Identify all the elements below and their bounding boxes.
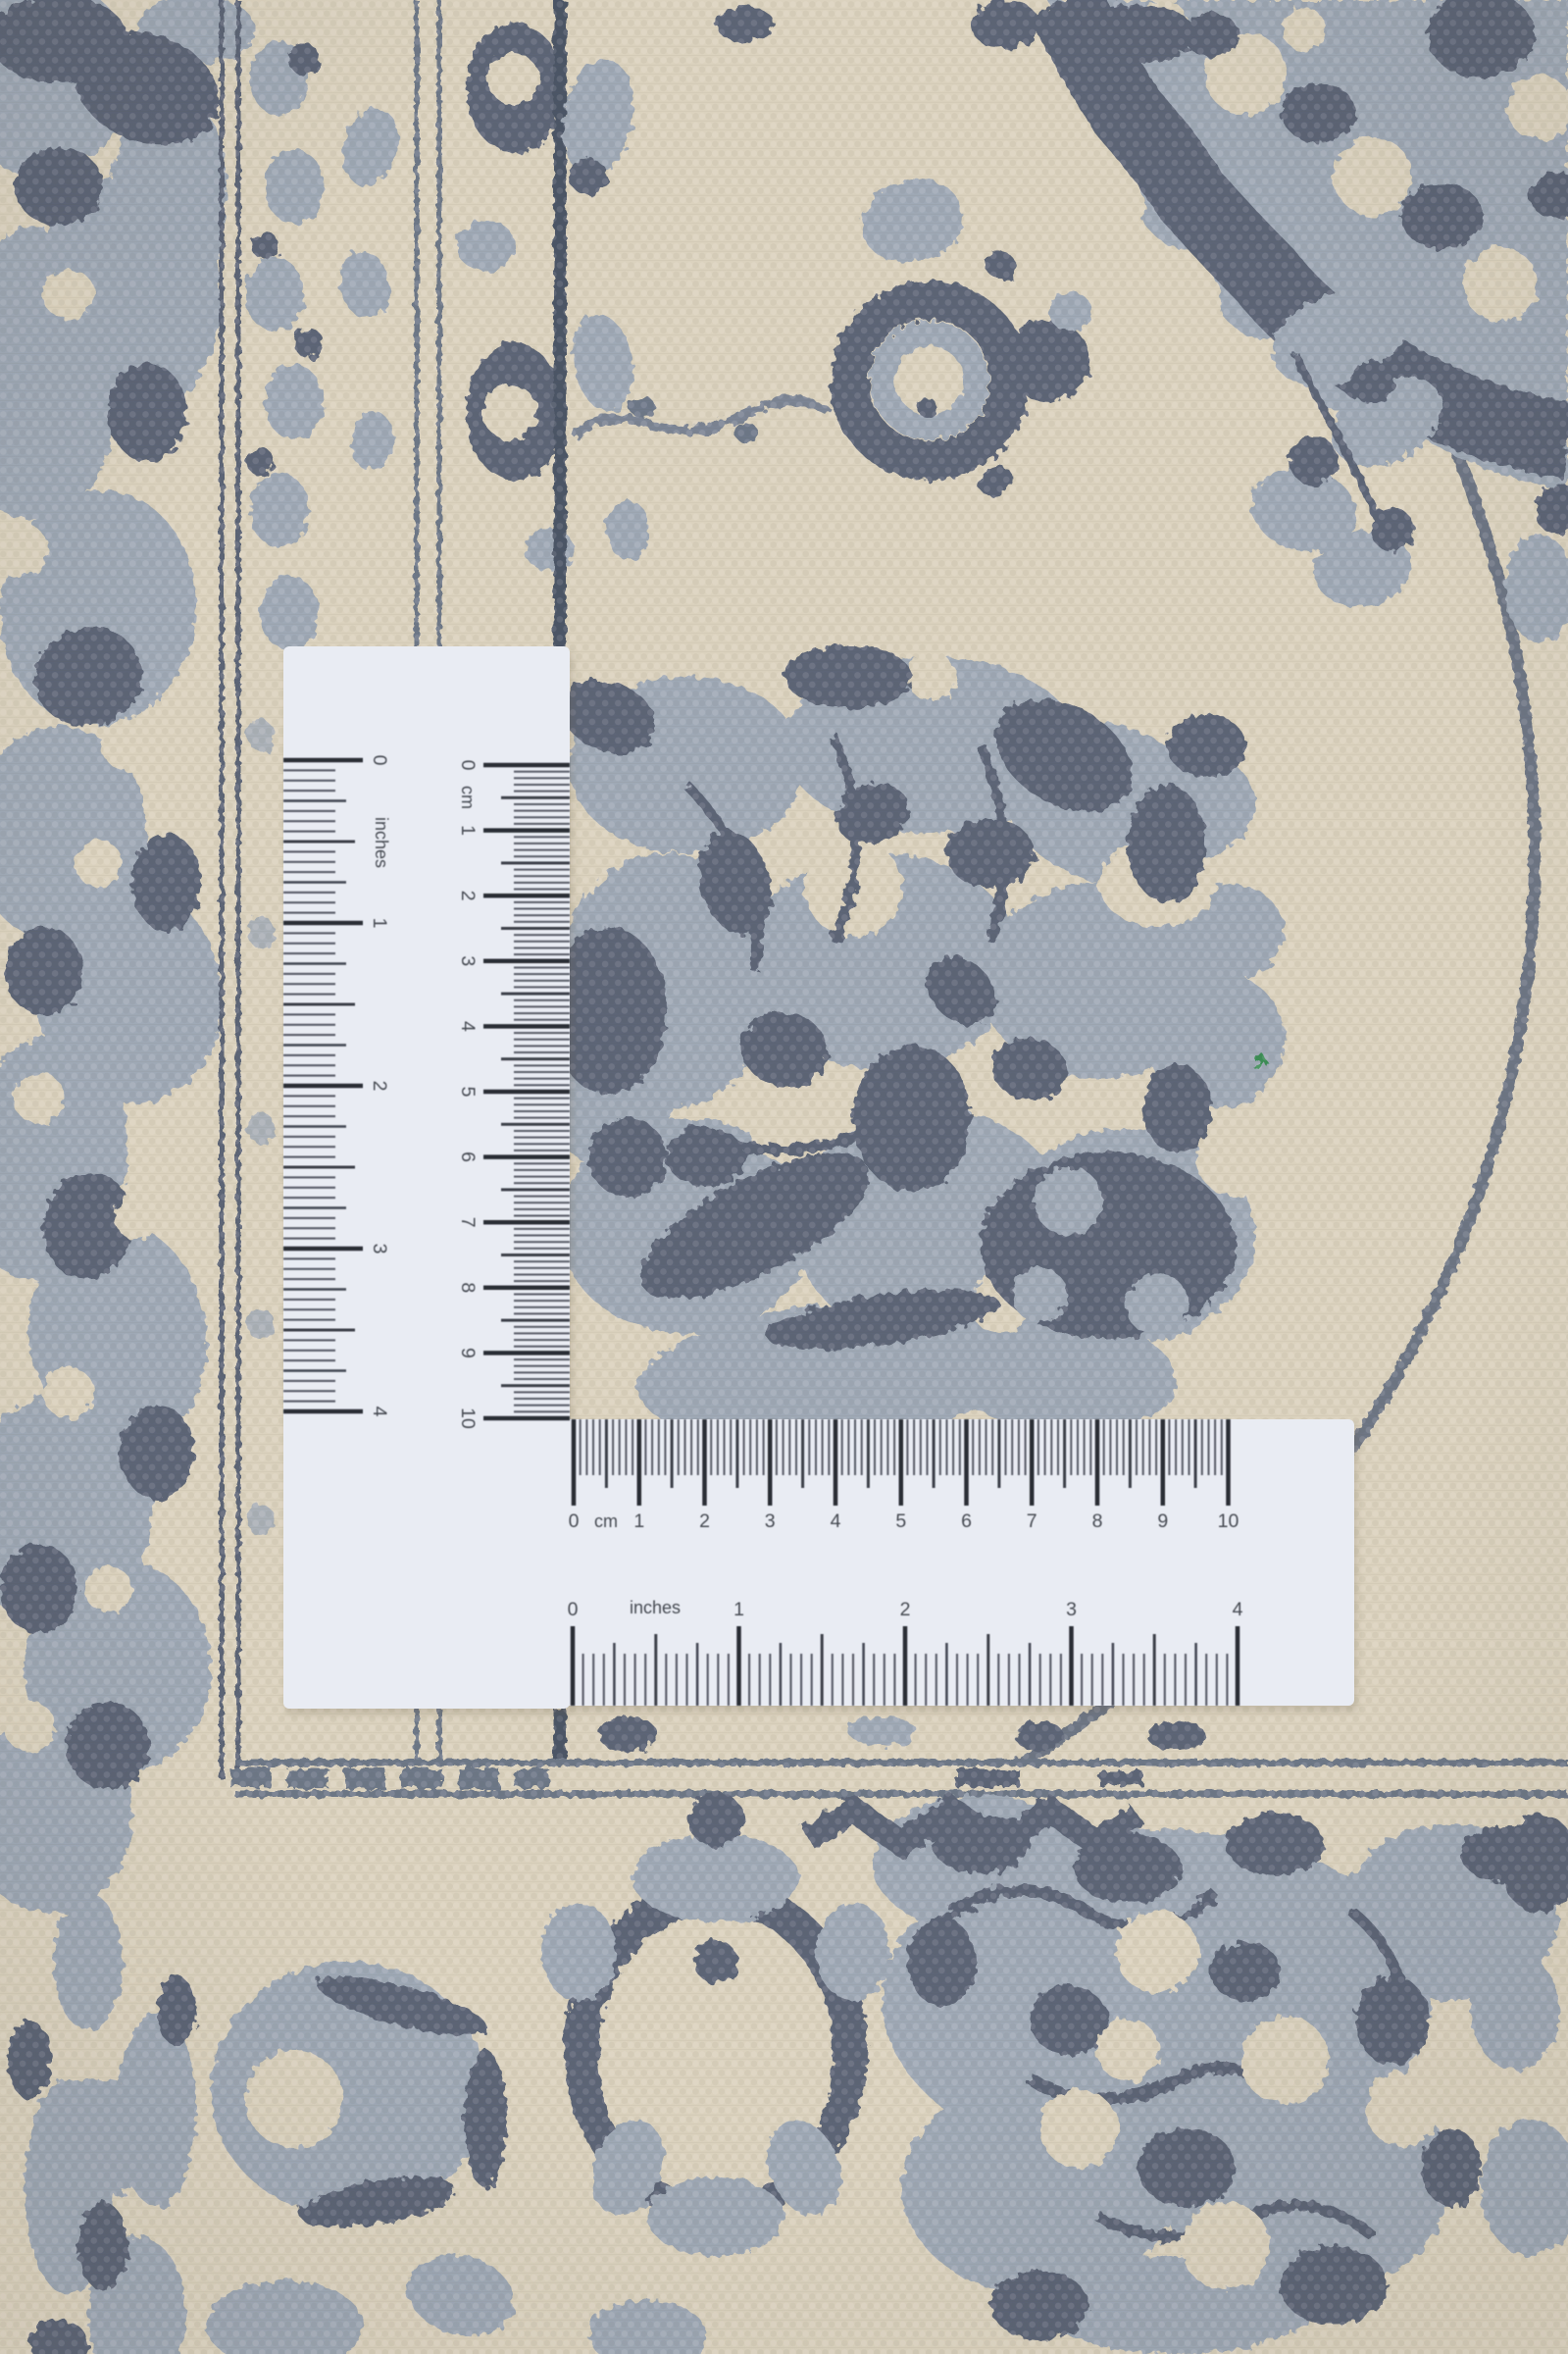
- svg-text:8: 8: [1092, 1510, 1103, 1532]
- svg-text:9: 9: [457, 1348, 479, 1358]
- svg-text:2: 2: [457, 891, 479, 901]
- svg-text:inches: inches: [630, 1598, 681, 1617]
- svg-text:cm: cm: [594, 1511, 618, 1531]
- svg-text:4: 4: [369, 1407, 390, 1417]
- svg-text:0: 0: [569, 1510, 580, 1532]
- svg-text:7: 7: [1027, 1510, 1037, 1532]
- svg-text:3: 3: [457, 955, 479, 966]
- svg-text:0: 0: [369, 755, 390, 766]
- svg-text:4: 4: [1233, 1599, 1243, 1620]
- svg-text:7: 7: [457, 1217, 479, 1228]
- svg-text:3: 3: [765, 1510, 776, 1532]
- svg-text:2: 2: [900, 1599, 911, 1620]
- svg-text:1: 1: [457, 825, 479, 836]
- svg-text:inches: inches: [372, 817, 391, 868]
- svg-text:10: 10: [1218, 1510, 1239, 1532]
- svg-text:6: 6: [961, 1510, 972, 1532]
- svg-text:1: 1: [369, 918, 390, 929]
- svg-text:5: 5: [895, 1510, 906, 1532]
- svg-text:3: 3: [369, 1244, 390, 1254]
- svg-text:9: 9: [1157, 1510, 1168, 1532]
- svg-text:cm: cm: [458, 786, 478, 809]
- svg-text:0: 0: [568, 1599, 579, 1620]
- svg-text:4: 4: [457, 1021, 479, 1032]
- svg-text:6: 6: [457, 1151, 479, 1162]
- svg-text:3: 3: [1066, 1599, 1077, 1620]
- svg-text:10: 10: [457, 1407, 479, 1429]
- svg-text:0: 0: [457, 760, 479, 771]
- svg-text:2: 2: [699, 1510, 710, 1532]
- svg-text:8: 8: [457, 1282, 479, 1293]
- svg-text:2: 2: [369, 1081, 390, 1092]
- svg-text:1: 1: [733, 1599, 744, 1620]
- svg-text:1: 1: [633, 1510, 644, 1532]
- svg-text:4: 4: [831, 1510, 841, 1532]
- svg-text:5: 5: [457, 1087, 479, 1098]
